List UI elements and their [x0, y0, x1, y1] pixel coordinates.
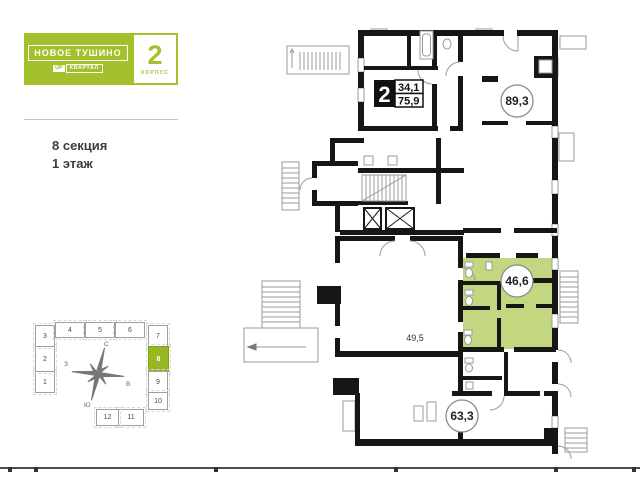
exterior-stairs-left [282, 162, 299, 210]
svg-text:89,3: 89,3 [505, 94, 529, 108]
exterior-stairs-top-left [287, 46, 349, 74]
french-balcony-top-right [560, 36, 586, 49]
svg-text:63,3: 63,3 [450, 409, 474, 423]
apartment-type-badge[interactable]: 2 34,1 75,9 [374, 80, 423, 108]
stair-core [362, 175, 406, 201]
floorplan-page: НОВОЕ ТУШИНО UP КВАРТАЛ 2 КОРПУС 8 секци… [0, 0, 640, 480]
ruler-tick [214, 467, 218, 472]
floor-plan-drawing: 2 34,1 75,9 89,3 46,6 63,3 49,5 [0, 0, 640, 480]
exterior-stairs-bottom-right [565, 428, 587, 452]
badge-total-area: 75,9 [398, 96, 419, 108]
ruler-tick [8, 467, 12, 472]
exterior-stairs-right [560, 271, 578, 323]
unit-area-badge-63-3[interactable]: 63,3 [446, 400, 478, 432]
svg-text:46,6: 46,6 [505, 274, 529, 288]
ruler-tick [34, 467, 38, 472]
badge-living-area: 34,1 [398, 82, 419, 94]
badge-rooms: 2 [378, 82, 390, 107]
ruler-tick [554, 467, 558, 472]
exterior-ramp-bottom-left [244, 281, 318, 362]
ruler-tick [394, 467, 398, 472]
ruler-tick [632, 467, 636, 472]
room-area-label: 49,5 [406, 333, 424, 343]
balcony-right [559, 133, 574, 161]
unit-area-badge-89-3[interactable]: 89,3 [501, 85, 533, 117]
bottom-ruler-line [0, 467, 640, 469]
unit-area-badge-46-6[interactable]: 46,6 [501, 265, 533, 297]
